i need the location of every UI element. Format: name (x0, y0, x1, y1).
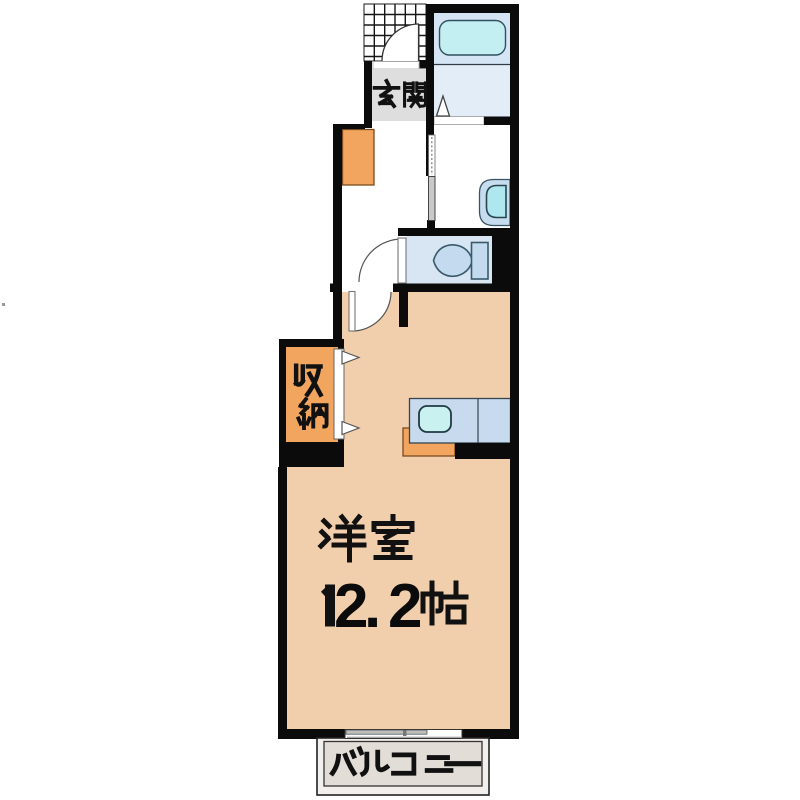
svg-text:2: 2 (388, 572, 422, 641)
svg-text:.: . (364, 572, 381, 641)
